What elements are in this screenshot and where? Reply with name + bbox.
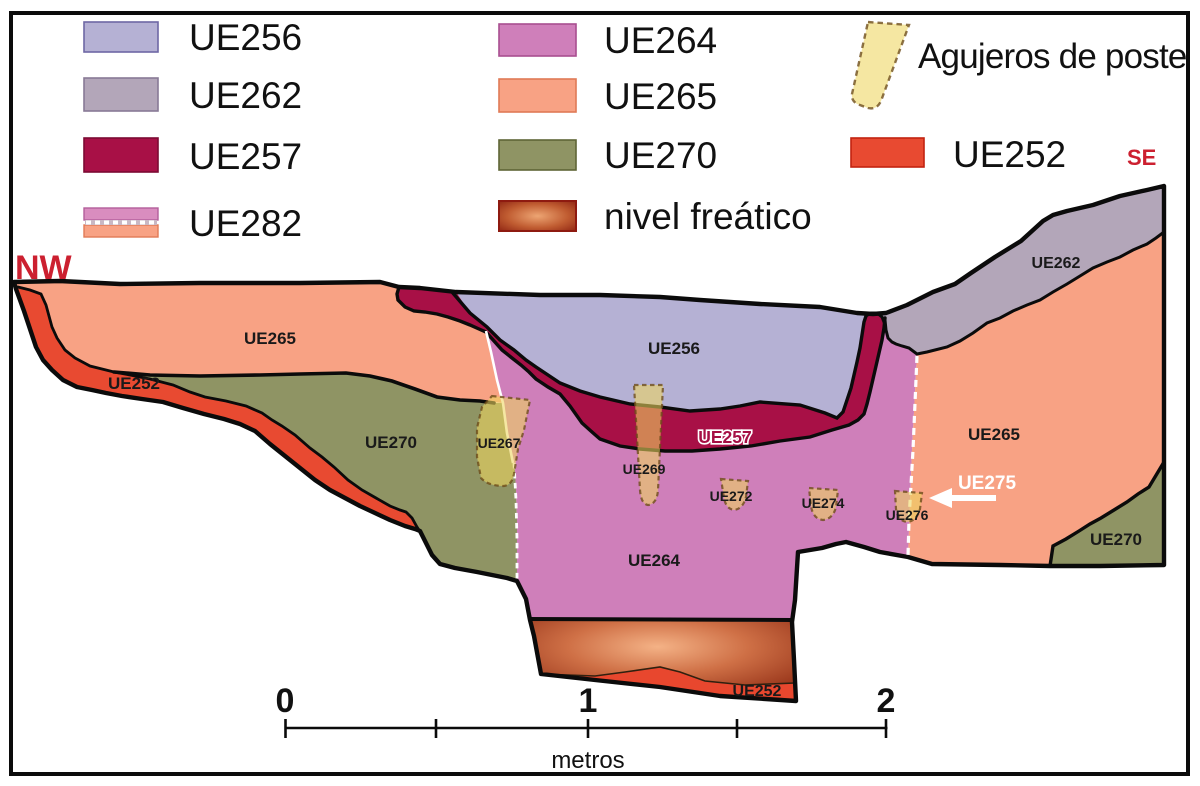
svg-text:2: 2 (877, 682, 896, 720)
svg-text:metros: metros (551, 747, 624, 774)
svg-text:UE282: UE282 (189, 203, 302, 244)
svg-text:UE264: UE264 (628, 551, 681, 570)
svg-text:UE264: UE264 (604, 20, 717, 61)
svg-text:NW: NW (15, 249, 73, 287)
svg-text:UE252: UE252 (108, 374, 160, 393)
svg-text:nivel freático: nivel freático (604, 196, 812, 237)
svg-text:UE270: UE270 (1090, 530, 1142, 549)
svg-text:Agujeros de poste: Agujeros de poste (918, 37, 1187, 76)
svg-text:UE262: UE262 (1032, 255, 1081, 272)
svg-text:SE: SE (1127, 145, 1156, 170)
svg-text:UE256: UE256 (648, 339, 700, 358)
svg-text:UE256: UE256 (189, 17, 302, 58)
svg-text:UE257: UE257 (698, 427, 752, 447)
svg-text:UE262: UE262 (189, 75, 302, 116)
svg-text:1: 1 (579, 682, 598, 720)
svg-text:UE265: UE265 (968, 425, 1020, 444)
svg-text:0: 0 (276, 682, 295, 720)
svg-text:UE269: UE269 (623, 461, 666, 477)
svg-text:UE270: UE270 (604, 135, 717, 176)
svg-text:UE270: UE270 (365, 433, 417, 452)
svg-text:UE252: UE252 (953, 134, 1066, 175)
svg-text:UE252: UE252 (733, 683, 782, 700)
svg-text:UE257: UE257 (189, 136, 302, 177)
svg-text:UE265: UE265 (604, 76, 717, 117)
svg-text:UE274: UE274 (802, 495, 845, 511)
svg-text:UE276: UE276 (886, 507, 929, 523)
svg-text:UE275: UE275 (958, 473, 1017, 494)
svg-text:UE265: UE265 (244, 329, 296, 348)
svg-text:UE267: UE267 (478, 435, 521, 451)
svg-text:UE272: UE272 (710, 488, 753, 504)
